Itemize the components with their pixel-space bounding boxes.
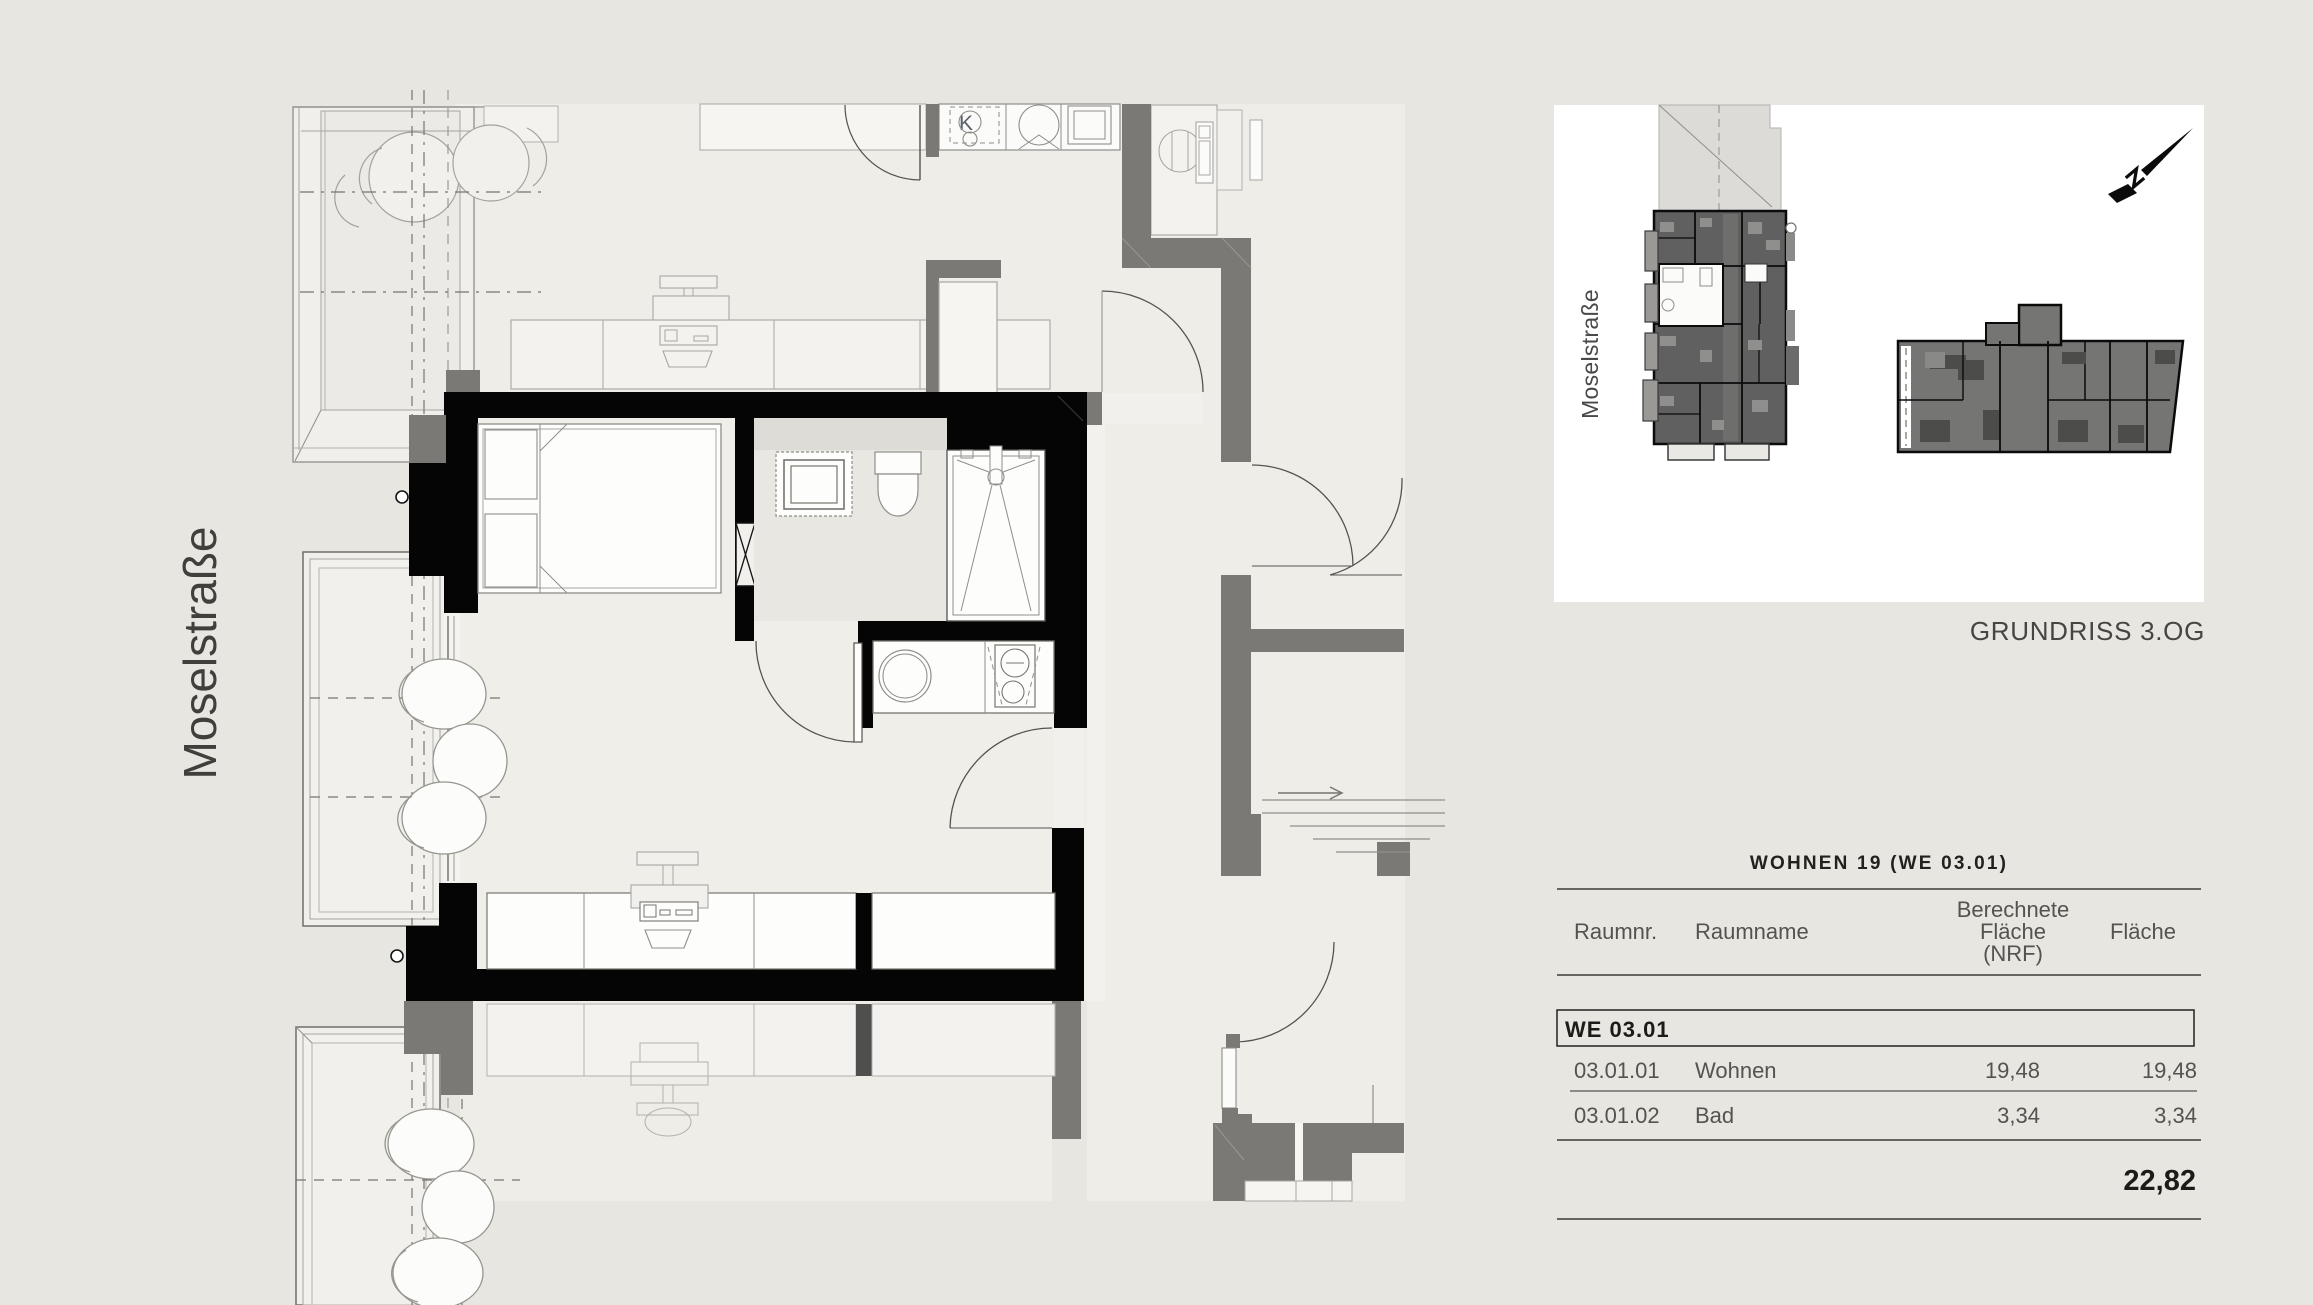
- svg-text:3,34: 3,34: [2154, 1103, 2197, 1128]
- svg-text:22,82: 22,82: [2123, 1165, 2196, 1197]
- svg-text:19,48: 19,48: [1985, 1058, 2040, 1083]
- svg-text:Raumnr.: Raumnr.: [1574, 919, 1657, 944]
- svg-text:WOHNEN 19 (WE 03.01): WOHNEN 19 (WE 03.01): [1750, 853, 2008, 874]
- svg-text:03.01.02: 03.01.02: [1574, 1103, 1660, 1128]
- svg-text:Wohnen: Wohnen: [1695, 1058, 1777, 1083]
- svg-text:3,34: 3,34: [1997, 1103, 2040, 1128]
- svg-text:Bad: Bad: [1695, 1103, 1734, 1128]
- svg-text:Moselstraße: Moselstraße: [1577, 289, 1603, 419]
- svg-text:Raumname: Raumname: [1695, 919, 1809, 944]
- svg-text:WE 03.01: WE 03.01: [1565, 1017, 1670, 1042]
- svg-text:(NRF): (NRF): [1983, 941, 2043, 966]
- svg-text:19,48: 19,48: [2142, 1058, 2197, 1083]
- svg-text:GRUNDRISS 3.OG: GRUNDRISS 3.OG: [1970, 616, 2205, 646]
- svg-text:Moselstraße: Moselstraße: [174, 526, 226, 779]
- svg-text:Fläche: Fläche: [2110, 919, 2176, 944]
- svg-text:03.01.01: 03.01.01: [1574, 1058, 1660, 1083]
